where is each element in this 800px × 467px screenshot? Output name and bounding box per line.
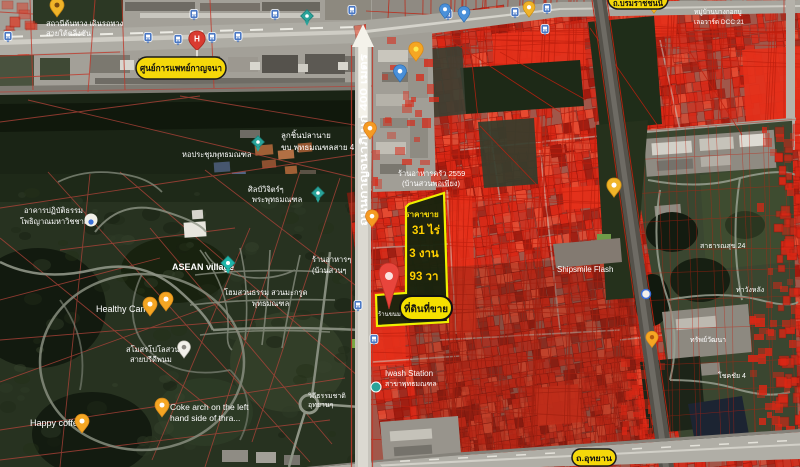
svg-text:พุทธมณฑล: พุทธมณฑล	[252, 299, 289, 308]
svg-text:โพธิญาณมหาวิชชาลัย: โพธิญาณมหาวิชชาลัย	[20, 217, 93, 226]
svg-text:ศูนย์การแพทย์กาญจนา: ศูนย์การแพทย์กาญจนา	[140, 62, 222, 74]
svg-text:93 วา: 93 วา	[410, 271, 439, 283]
svg-text:ถนนกาญจนาภิเษก 400 เมตร: ถนนกาญจนาภิเษก 400 เมตร	[358, 53, 370, 226]
svg-text:ร้านขนม: ร้านขนม	[378, 311, 401, 318]
svg-text:โฮมสวนธรรม สวนมะกรูด: โฮมสวนธรรม สวนมะกรูด	[224, 288, 308, 297]
svg-text:พระพุทธมณฑล: พระพุทธมณฑล	[252, 195, 302, 204]
svg-text:31 ไร่: 31 ไร่	[412, 223, 441, 237]
svg-text:Shipsmile Flash: Shipsmile Flash	[557, 265, 613, 274]
svg-text:สายปรีดีพนม: สายปรีดีพนม	[130, 355, 172, 364]
svg-text:hand side of thra...: hand side of thra...	[170, 413, 240, 423]
svg-text:อาคารปฏิบัติธรรม: อาคารปฏิบัติธรรม	[24, 206, 83, 215]
svg-text:ลูกชิ้นปลานาย: ลูกชิ้นปลานาย	[281, 129, 331, 141]
svg-text:ถ.บรมราชชนนี: ถ.บรมราชชนนี	[613, 0, 663, 8]
svg-text:สถานีต้นทาง เดินรถทาง: สถานีต้นทาง เดินรถทาง	[46, 19, 124, 28]
svg-text:ที่ดินที่ขาย: ที่ดินที่ขาย	[404, 301, 448, 315]
svg-text:ศิลป์วิจิตร์ๆ: ศิลป์วิจิตร์ๆ	[248, 185, 284, 194]
svg-text:ร้านอาหารครัว 2559: ร้านอาหารครัว 2559	[398, 169, 465, 178]
svg-text:(บ้านสวนๆ: (บ้านสวนๆ	[312, 266, 347, 275]
svg-text:วิถีธรรมชาติ: วิถีธรรมชาติ	[308, 392, 346, 400]
svg-text:หมู่บ้านบางกอกบู: หมู่บ้านบางกอกบู	[694, 8, 742, 16]
svg-text:เลอวาร์ด DCC 21: เลอวาร์ด DCC 21	[694, 18, 744, 26]
svg-text:ราคาขาย: ราคาขาย	[405, 210, 439, 219]
svg-text:สาขาพุทธมณฑล: สาขาพุทธมณฑล	[385, 381, 437, 388]
svg-text:3 งาน: 3 งาน	[409, 248, 439, 260]
svg-text:โชคชัย 4: โชคชัย 4	[718, 371, 746, 380]
svg-text:ขบ พุทธมณฑลสาย 4: ขบ พุทธมณฑลสาย 4	[281, 143, 355, 152]
svg-text:H: H	[194, 35, 200, 44]
svg-text:สาธารณสุข 24: สาธารณสุข 24	[700, 243, 746, 250]
svg-text:สโมสรโปโลสวน: สโมสรโปโลสวน	[126, 345, 180, 354]
svg-text:ท่าวังหลัง: ท่าวังหลัง	[736, 286, 764, 294]
svg-text:Coke arch on the left: Coke arch on the left	[170, 402, 249, 412]
svg-text:ถ.อุทยาน: ถ.อุทยาน	[576, 454, 613, 464]
svg-text:Iwash Station: Iwash Station	[385, 369, 433, 378]
svg-text:อุทยานๆ: อุทยานๆ	[308, 402, 334, 409]
svg-text:ทรัพย์วัฒนา: ทรัพย์วัฒนา	[690, 336, 726, 344]
svg-text:(บ้านสวนพอเพียง): (บ้านสวนพอเพียง)	[402, 179, 461, 188]
svg-text:หอประชุมพุทธมณฑล: หอประชุมพุทธมณฑล	[182, 150, 252, 159]
svg-text:ร้านอาหารๆ: ร้านอาหารๆ	[312, 255, 351, 264]
svg-text:สายใต้ตลิ่งชัน: สายใต้ตลิ่งชัน	[46, 28, 91, 38]
